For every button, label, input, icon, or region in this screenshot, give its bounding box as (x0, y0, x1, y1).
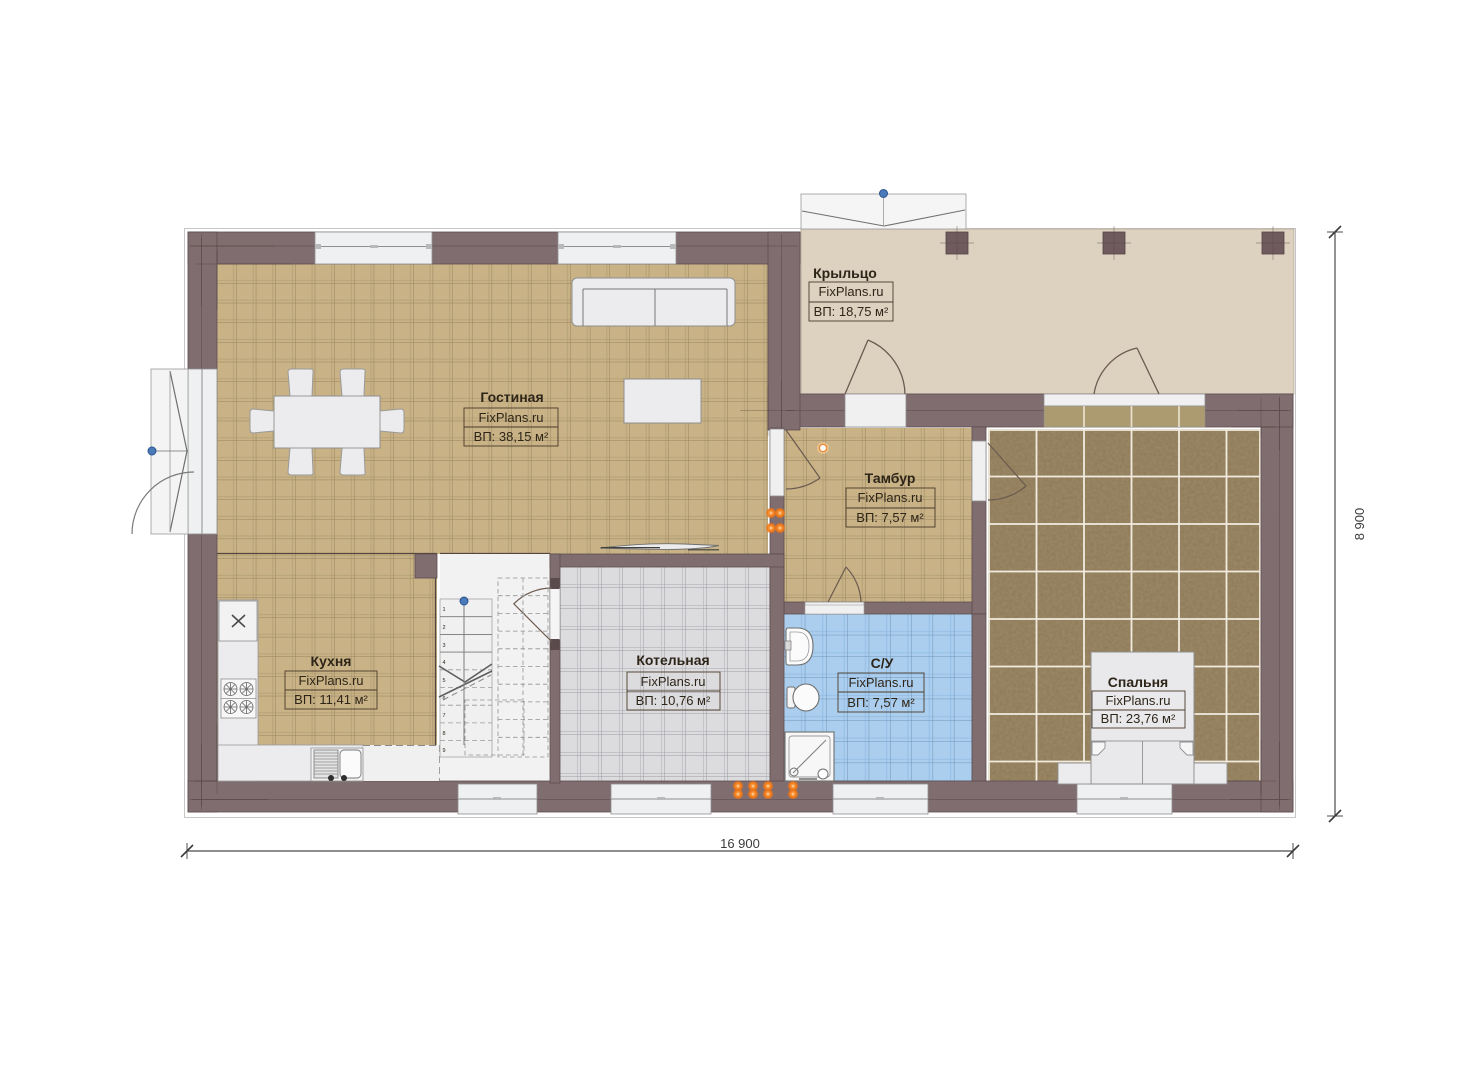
svg-text:9: 9 (443, 748, 446, 754)
svg-text:С/У: С/У (871, 655, 894, 671)
svg-text:ВП: 7,57 м²: ВП: 7,57 м² (856, 510, 924, 525)
svg-text:Котельная: Котельная (636, 652, 709, 668)
svg-text:ВП: 7,57 м²: ВП: 7,57 м² (847, 695, 915, 710)
svg-text:3: 3 (443, 643, 446, 649)
svg-text:1: 1 (443, 607, 446, 613)
svg-text:8: 8 (443, 731, 446, 737)
svg-text:Спальня: Спальня (1108, 674, 1168, 690)
svg-text:Гостиная: Гостиная (480, 389, 543, 405)
svg-text:FixPlans.ru: FixPlans.ru (478, 410, 543, 425)
svg-text:Тамбур: Тамбур (865, 470, 916, 486)
svg-text:Крыльцо: Крыльцо (813, 265, 877, 281)
svg-text:5: 5 (443, 678, 446, 684)
svg-text:2: 2 (443, 625, 446, 631)
svg-text:7: 7 (443, 713, 446, 719)
svg-text:ВП: 18,75 м²: ВП: 18,75 м² (814, 304, 889, 319)
svg-text:FixPlans.ru: FixPlans.ru (640, 674, 705, 689)
svg-text:Кухня: Кухня (311, 653, 352, 669)
svg-text:4: 4 (443, 660, 446, 666)
svg-text:ВП: 10,76 м²: ВП: 10,76 м² (636, 693, 711, 708)
svg-text:FixPlans.ru: FixPlans.ru (818, 284, 883, 299)
svg-text:FixPlans.ru: FixPlans.ru (1105, 693, 1170, 708)
svg-text:FixPlans.ru: FixPlans.ru (848, 675, 913, 690)
svg-text:ВП: 23,76 м²: ВП: 23,76 м² (1101, 711, 1176, 726)
svg-text:ВП: 11,41 м²: ВП: 11,41 м² (294, 692, 368, 707)
svg-text:ВП: 38,15 м²: ВП: 38,15 м² (474, 429, 549, 444)
svg-text:FixPlans.ru: FixPlans.ru (298, 673, 363, 688)
svg-text:8 900: 8 900 (1352, 508, 1367, 541)
svg-text:FixPlans.ru: FixPlans.ru (857, 490, 922, 505)
svg-text:16 900: 16 900 (720, 836, 760, 851)
